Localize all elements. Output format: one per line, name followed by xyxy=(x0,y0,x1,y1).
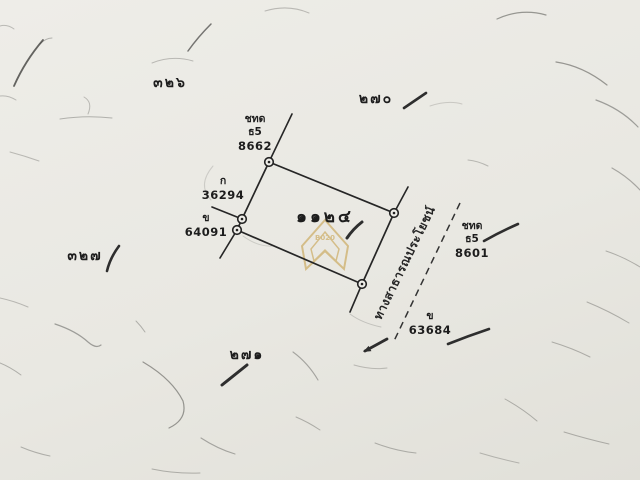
marker-label-right-series: ธ5 xyxy=(442,233,502,246)
paper-fiber xyxy=(152,58,193,63)
marker-label-right-code: ชทด xyxy=(442,220,502,233)
paper-fiber xyxy=(243,236,272,246)
paper-fiber xyxy=(84,97,90,114)
paper-fiber xyxy=(265,8,309,13)
paper-fiber xyxy=(143,362,184,428)
marker-label-bottom-right-code: ข xyxy=(400,310,460,323)
marker-label-top-number: 8662 xyxy=(225,139,285,153)
paper-fiber xyxy=(0,298,28,307)
marker-label-bottom-right-number: 63684 xyxy=(400,323,460,337)
marker-label-bottom-right: ข 63684 xyxy=(400,310,460,337)
paper-fiber xyxy=(152,469,200,473)
paper-fiber xyxy=(201,438,235,454)
paper-fiber xyxy=(136,321,145,332)
paper-fiber xyxy=(552,342,590,357)
grid-number-top-left: ๓๒๖ xyxy=(140,72,200,94)
paper-fiber xyxy=(296,417,320,430)
paper-fiber xyxy=(188,24,211,51)
marker-label-left-upper-number: 36294 xyxy=(193,188,253,202)
plot-number: ๑๑๒๔ xyxy=(285,203,365,230)
marker-label-top: ชทด ธ5 8662 xyxy=(225,113,285,153)
boundary-marker-center-dot xyxy=(268,161,271,164)
paper-fiber xyxy=(375,443,416,453)
paper-fiber xyxy=(60,117,112,119)
boundary-marker-center-dot xyxy=(241,218,244,221)
paper-fiber xyxy=(556,62,607,85)
paper-fiber xyxy=(596,100,638,127)
paper-fiber xyxy=(0,363,21,375)
boundary-marker-center-dot xyxy=(361,283,364,286)
paper-fiber xyxy=(612,168,640,190)
paper-fiber xyxy=(10,152,39,161)
paper-fiber xyxy=(0,96,16,100)
paper-fiber xyxy=(606,251,640,267)
paper-fiber xyxy=(505,399,537,421)
marker-label-top-series: ธ5 xyxy=(225,126,285,139)
paper-fiber xyxy=(55,324,101,346)
paper-fiber xyxy=(430,102,462,106)
grid-number-top-right: ๒๗๐ xyxy=(346,88,406,110)
paper-fiber xyxy=(497,12,546,19)
pen-stroke xyxy=(404,93,426,108)
paper-fiber xyxy=(587,302,629,323)
boundary-marker-center-dot xyxy=(236,229,239,232)
grid-number-left: ๓๒๗ xyxy=(55,245,115,267)
paper-fiber xyxy=(293,352,318,380)
marker-label-top-code: ชทด xyxy=(225,113,285,126)
pen-stroke xyxy=(222,365,247,385)
paper-fiber xyxy=(480,453,519,463)
marker-label-left-lower-number: 64091 xyxy=(176,225,236,239)
paper-fiber xyxy=(564,432,609,444)
marker-label-left-upper-code: ก xyxy=(193,175,253,188)
watermark-text: B020 xyxy=(315,234,335,242)
marker-label-left-lower: ข 64091 xyxy=(176,212,236,239)
scanned-survey-sketch-page: B020 ๓๒๖ ๒๗๐ ๓๒๗ ๒๗๑ ๑๑๒๔ ชทด ธ5 8662 ก … xyxy=(0,0,640,480)
boundary-marker-center-dot xyxy=(393,212,396,215)
marker-label-right: ชทด ธ5 8601 xyxy=(442,220,502,260)
paper-fiber xyxy=(14,40,43,86)
marker-label-left-lower-code: ข xyxy=(176,212,236,225)
paper-fiber xyxy=(21,447,50,456)
grid-number-bottom: ๒๗๑ xyxy=(217,344,277,366)
paper-fiber xyxy=(354,365,387,369)
survey-sketch-drawing: B020 xyxy=(0,0,640,480)
paper-fiber xyxy=(0,25,14,29)
marker-label-right-number: 8601 xyxy=(442,246,502,260)
paper-fiber xyxy=(468,160,488,166)
marker-label-left-upper: ก 36294 xyxy=(193,175,253,202)
